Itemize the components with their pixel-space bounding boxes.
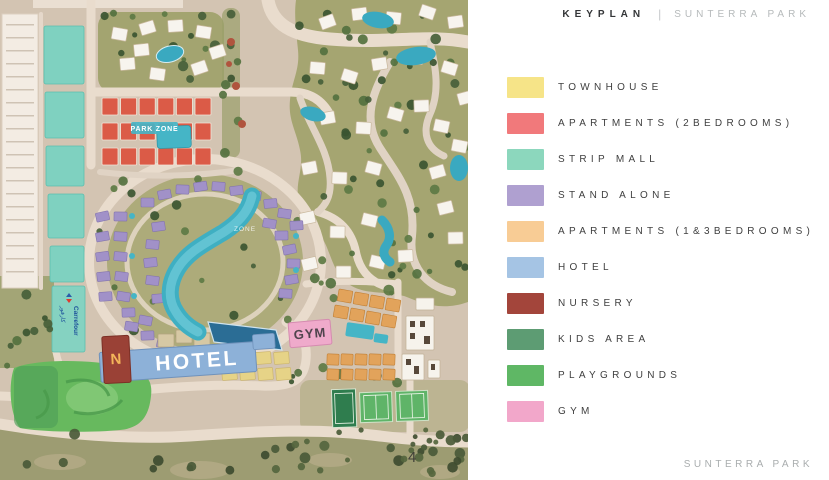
footer-project-name: SUNTERRA PARK xyxy=(684,459,813,470)
gym-legend-label: GYM xyxy=(558,405,594,417)
apartments-1-3bedrooms-swatch xyxy=(507,221,544,242)
masterplan-svg: كارفور Carrefour xyxy=(0,0,468,480)
kids-area-zone xyxy=(14,366,58,428)
strip-mall-swatch xyxy=(507,149,544,170)
carrefour-arabic-label: كارفور xyxy=(59,305,66,323)
legend-item-apartments-2bedrooms: APARTMENTS (2BEDROOMS) xyxy=(507,105,814,141)
legend-item-hotel: HOTEL xyxy=(507,249,814,285)
townhouse-label: TOWNHOUSE xyxy=(558,81,663,93)
nursery-label: N xyxy=(110,351,122,369)
legend-item-playgrounds: PLAYGROUNDS xyxy=(507,357,814,393)
legend-item-gym: GYM xyxy=(507,393,814,429)
gym-label: GYM xyxy=(293,325,327,343)
legend-item-strip-mall: STRIP MALL xyxy=(507,141,814,177)
carrefour-building: كارفور Carrefour xyxy=(52,286,85,352)
keyplan-page: كارفور Carrefour xyxy=(0,0,829,480)
gym-building: GYM xyxy=(288,319,332,348)
playgrounds-label: PLAYGROUNDS xyxy=(558,369,681,381)
kids-area-swatch xyxy=(507,329,544,350)
strip-mall-label: STRIP MALL xyxy=(558,153,659,165)
page-header: KEYPLAN | SUNTERRA PARK xyxy=(562,7,810,21)
legend-item-townhouse: TOWNHOUSE xyxy=(507,69,814,105)
parking-strip xyxy=(2,14,38,288)
keyplan-title: KEYPLAN xyxy=(562,9,645,20)
gym-swatch xyxy=(507,401,544,422)
stand-alone-swatch xyxy=(507,185,544,206)
apartments-2bedrooms-swatch xyxy=(507,113,544,134)
legend-item-stand-alone: STAND ALONE xyxy=(507,177,814,213)
townhouse-swatch xyxy=(507,77,544,98)
carrefour-label: Carrefour xyxy=(72,306,79,336)
park-zone-label: PARK ZONE xyxy=(131,126,179,133)
page-number: 4 xyxy=(408,449,416,466)
nursery-legend-label: NURSERY xyxy=(558,297,637,309)
hotel-legend-label: HOTEL xyxy=(558,261,613,273)
legend-item-apartments-1-3bedrooms: APARTMENTS (1&3BEDROOMS) xyxy=(507,213,814,249)
nursery-swatch xyxy=(507,293,544,314)
apartments-1-3bedrooms-label: APARTMENTS (1&3BEDROOMS) xyxy=(558,225,814,237)
stand-alone-label: STAND ALONE xyxy=(558,189,675,201)
header-separator: | xyxy=(658,7,661,21)
legend-item-nursery: NURSERY xyxy=(507,285,814,321)
hotel-swatch xyxy=(507,257,544,278)
legend-item-kids-area: KIDS AREA xyxy=(507,321,814,357)
masterplan-map: كارفور Carrefour xyxy=(0,0,468,480)
header-project-name: SUNTERRA PARK xyxy=(674,9,810,20)
nursery-building: N xyxy=(102,335,131,383)
playgrounds-swatch xyxy=(507,365,544,386)
lagoon-zone-label: ZONE xyxy=(234,226,256,233)
kids-area-label: KIDS AREA xyxy=(558,333,650,345)
apartments-2bedrooms-label: APARTMENTS (2BEDROOMS) xyxy=(558,117,793,129)
legend: TOWNHOUSE APARTMENTS (2BEDROOMS) STRIP M… xyxy=(507,69,814,429)
